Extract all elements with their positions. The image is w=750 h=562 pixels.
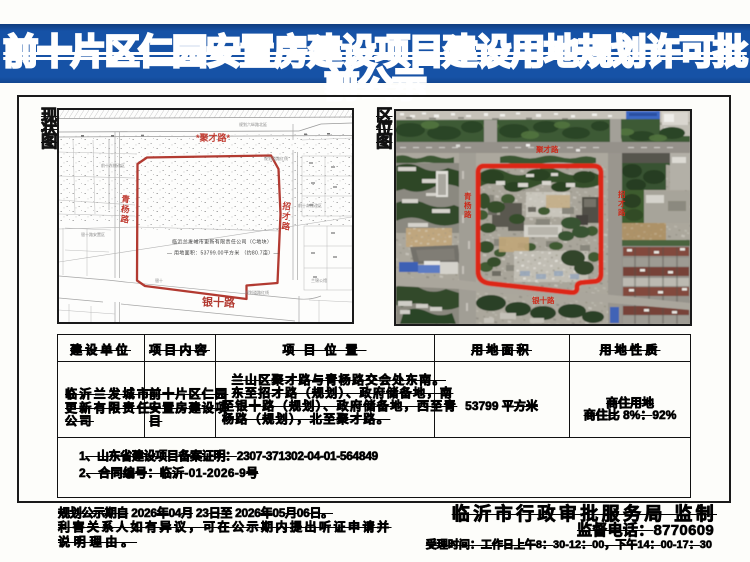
svg-text:银十路安置区: 银十路安置区 — [81, 231, 105, 237]
svg-text:— 用地面积：53799.00平方米 （约80.7亩）—: — 用地面积：53799.00平方米 （约80.7亩）— — [167, 250, 279, 257]
svg-text:规划道路红线: 规划道路红线 — [264, 155, 288, 161]
svg-text:招才路: 招才路 — [618, 189, 626, 217]
svg-text:银十: 银十 — [155, 277, 163, 283]
svg-text:前十东棚改区: 前十东棚改区 — [101, 162, 125, 168]
svg-text:青杨路: 青杨路 — [464, 191, 472, 219]
svg-text:银十路: 银十路 — [202, 295, 236, 310]
svg-text:临沂兰发城市更新有限责任公司（C地块）: 临沂兰发城市更新有限责任公司（C地块） — [172, 239, 272, 246]
svg-text:银十路: 银十路 — [532, 295, 555, 305]
svg-text:前十东棚改区: 前十东棚改区 — [298, 202, 322, 208]
svg-text:兰锦公馆: 兰锦公馆 — [311, 277, 327, 283]
svg-text:规划六纵路北延: 规划六纵路北延 — [239, 121, 267, 127]
svg-text:*聚才路*: *聚才路* — [196, 132, 231, 143]
svg-text:聚才路: 聚才路 — [535, 144, 559, 154]
svg-text:规划道路红线: 规划道路红线 — [245, 289, 269, 295]
